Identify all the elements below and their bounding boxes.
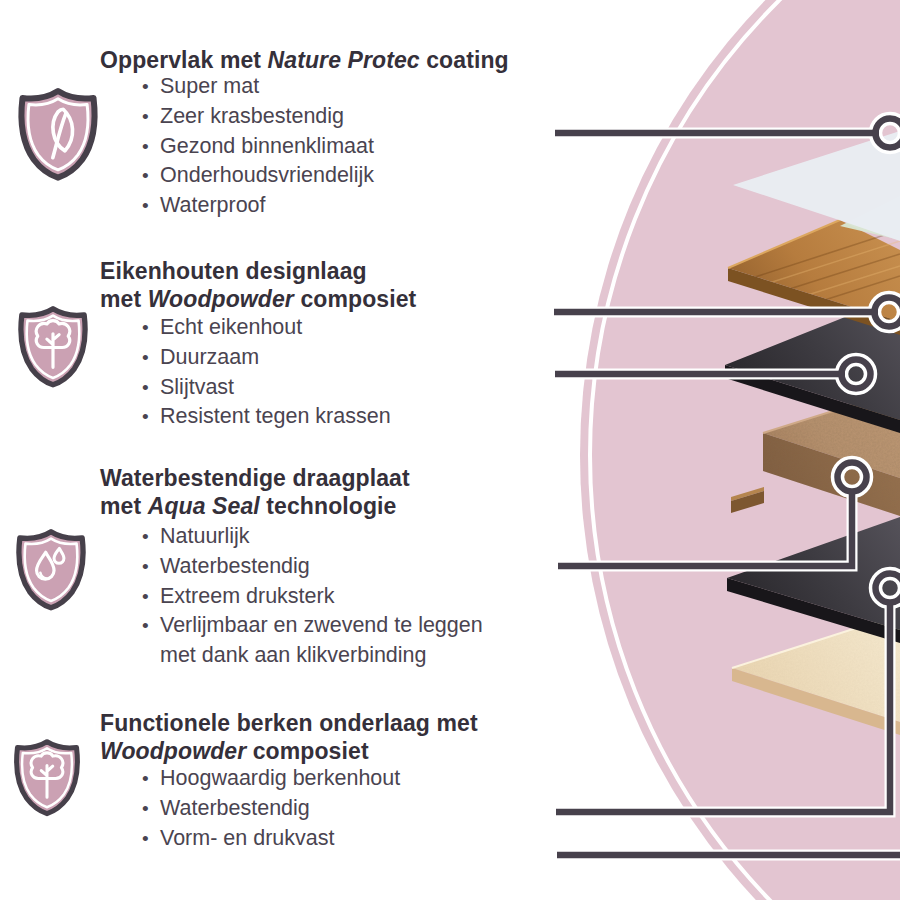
heading-text: Oppervlak met	[100, 47, 268, 73]
section-heading: Functionele berken onderlaag metWoodpowd…	[100, 709, 478, 765]
heading-text: met	[100, 493, 148, 519]
heading-brand-term: Woodpowder	[148, 286, 294, 312]
heading-brand-term: Aqua Seal	[148, 493, 260, 519]
bullet-item: Natuurlijk	[142, 522, 612, 552]
heading-text: Eikenhouten designlaag	[100, 258, 367, 284]
section-heading: Oppervlak met Nature Protec coating	[100, 46, 509, 74]
heading-text: composiet	[294, 286, 416, 312]
bullet-item: Vorm- en drukvast	[142, 824, 612, 854]
bullet-item: Resistent tegen krassen	[142, 402, 612, 432]
bullet-item: Duurzaam	[142, 343, 612, 373]
bullet-item: Hoogwaardig berkenhout	[142, 764, 612, 794]
heading-brand-term: Nature Protec	[268, 47, 420, 73]
water-drops-shield-icon	[13, 520, 89, 618]
bullet-item: Gezond binnenklimaat	[142, 132, 612, 162]
tree-shield-icon	[11, 728, 83, 826]
bullet-item: Verlijmbaar en zwevend te leggen met dan…	[142, 611, 612, 671]
bullet-item: Waterbestendig	[142, 794, 612, 824]
section-heading: Eikenhouten designlaagmet Woodpowder com…	[100, 257, 416, 313]
bullet-list: NatuurlijkWaterbestendigExtreem drukster…	[142, 522, 612, 671]
bullet-item: Extreem druksterk	[142, 582, 612, 612]
bullet-item: Echt eikenhout	[142, 313, 612, 343]
bullet-list: Hoogwaardig berkenhoutWaterbestendigVorm…	[142, 764, 612, 853]
heading-text: composiet	[246, 738, 368, 764]
section-heading: Waterbestendige draagplaatmet Aqua Seal …	[100, 464, 410, 520]
bullet-item: Super mat	[142, 72, 612, 102]
bullet-list: Echt eikenhoutDuurzaamSlijtvastResistent…	[142, 313, 612, 432]
heading-brand-term: Woodpowder	[100, 738, 246, 764]
bullet-item: Waterproof	[142, 191, 612, 221]
heading-text: coating	[420, 47, 509, 73]
bullet-item: Zeer krasbestendig	[142, 102, 612, 132]
heading-text: met	[100, 286, 148, 312]
heading-text: Functionele berken onderlaag met	[100, 710, 478, 736]
bullet-item: Waterbestendig	[142, 552, 612, 582]
bullet-list: Super matZeer krasbestendigGezond binnen…	[142, 72, 612, 221]
heading-text: technologie	[260, 493, 397, 519]
leaf-shield-icon	[13, 85, 103, 182]
bullet-item: Slijtvast	[142, 373, 612, 403]
tree-shield-icon	[15, 297, 91, 395]
heading-text: Waterbestendige draagplaat	[100, 465, 410, 491]
infographic-canvas: Oppervlak met Nature Protec coating Supe…	[0, 0, 900, 900]
bullet-item: Onderhoudsvriendelijk	[142, 161, 612, 191]
